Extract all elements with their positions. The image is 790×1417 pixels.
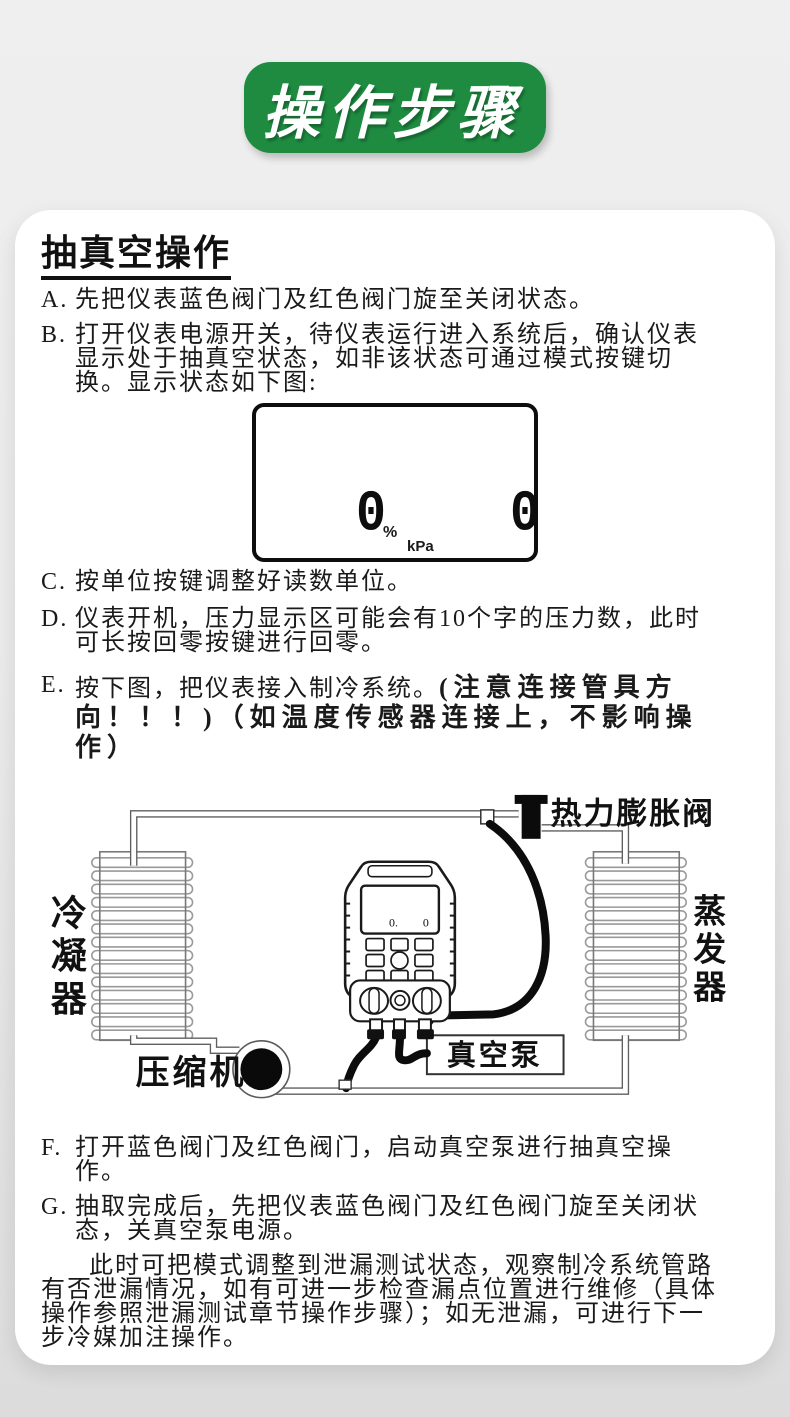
section-title: 操作步骤 — [262, 66, 528, 150]
lcd-unit-kpa: kPa — [407, 538, 434, 555]
lcd-right-value: 0 — [510, 482, 540, 548]
step-e-label: E. — [41, 673, 75, 763]
device-keypad — [366, 939, 433, 983]
subsection-heading: 抽真空操作 — [41, 234, 231, 280]
step-c: C. 按单位按键调整好读数单位。 — [41, 570, 749, 594]
expansion-valve-label: 热力膨胀阀 — [551, 796, 716, 831]
device-screen-right-digit: 0 — [423, 916, 429, 930]
blue-valve-knob — [360, 988, 388, 1014]
closing-paragraph: 此时可把模式调整到泄漏测试状态，观察制冷系统管路有否泄漏情况，如有可进一步检查漏… — [41, 1254, 721, 1350]
evaporator-label: 蒸发器 — [688, 894, 725, 1008]
hose-fittings — [367, 1029, 434, 1039]
step-g-text: 抽取完成后，先把仪表蓝色阀门及红色阀门旋至关闭状态，关真空泵电源。 — [75, 1195, 705, 1243]
step-b: B. 打开仪表电源开关，待仪表运行进入系统后，确认仪表显示处于抽真空状态，如非该… — [41, 323, 749, 395]
step-b-text: 打开仪表电源开关，待仪表运行进入系统后，确认仪表显示处于抽真空状态，如非该状态可… — [75, 323, 705, 395]
system-diagram: 真空泵 0. 0 — [15, 771, 775, 1122]
step-c-text: 按单位按键调整好读数单位。 — [75, 570, 705, 594]
device-screen-left-digit: 0. — [389, 916, 398, 930]
manual-page: { "badge": { "title": "操作步骤", "color": "… — [0, 0, 790, 1417]
step-f-label: F. — [41, 1136, 75, 1184]
step-c-label: C. — [41, 570, 75, 594]
lcd-percent-sign: % — [383, 524, 397, 542]
step-g-label: G. — [41, 1195, 75, 1243]
device-top-slot — [368, 866, 432, 877]
step-d: D. 仪表开机，压力显示区可能会有10个字的压力数，此时可长按回零按键进行回零。 — [41, 607, 749, 655]
step-g: G. 抽取完成后，先把仪表蓝色阀门及红色阀门旋至关闭状态，关真空泵电源。 — [41, 1195, 749, 1243]
condenser-label: 冷凝器 — [46, 893, 87, 1022]
step-e: E. 按下图，把仪表接入制冷系统。(注意连接管具方向！！！)（如温度传感器连接上… — [41, 673, 749, 763]
vacuum-pump-label: 真空泵 — [447, 1039, 543, 1072]
step-b-label: B. — [41, 323, 75, 395]
step-f-text: 打开蓝色阀门及红色阀门，启动真空泵进行抽真空操作。 — [75, 1136, 705, 1184]
compressor-label: 压缩机 — [136, 1054, 247, 1092]
condenser-coil — [92, 852, 193, 1040]
lcd-left-value: 0 — [356, 482, 386, 548]
step-d-text: 仪表开机，压力显示区可能会有10个字的压力数，此时可长按回零按键进行回零。 — [75, 607, 705, 655]
step-e-main: 按下图，把仪表接入制冷系统。 — [75, 676, 439, 702]
hose-center — [399, 1037, 427, 1060]
red-valve-knob — [413, 988, 441, 1014]
center-port — [391, 991, 410, 1010]
step-a-label: A. — [41, 288, 75, 312]
evaporator-coil — [585, 852, 686, 1040]
step-f: F. 打开蓝色阀门及红色阀门，启动真空泵进行抽真空操作。 — [41, 1136, 749, 1184]
expansion-valve-symbol — [515, 795, 548, 839]
manifold-gauge-device: 0. 0 — [344, 862, 456, 1040]
step-d-label: D. — [41, 607, 75, 655]
section-title-badge: 操作步骤 — [244, 62, 546, 153]
content-card: 抽真空操作 A. 先把仪表蓝色阀门及红色阀门旋至关闭状态。 B. 打开仪表电源开… — [15, 210, 775, 1365]
step-e-text: 按下图，把仪表接入制冷系统。(注意连接管具方向！！！)（如温度传感器连接上，不影… — [75, 673, 705, 763]
step-a: A. 先把仪表蓝色阀门及红色阀门旋至关闭状态。 — [41, 288, 749, 312]
vacuum-pump-box: 真空泵 — [427, 1035, 564, 1074]
step-a-text: 先把仪表蓝色阀门及红色阀门旋至关闭状态。 — [75, 288, 705, 312]
hose-bottom-connector — [339, 1080, 351, 1089]
lcd-display: 0 % kPa 0 — [252, 403, 538, 562]
